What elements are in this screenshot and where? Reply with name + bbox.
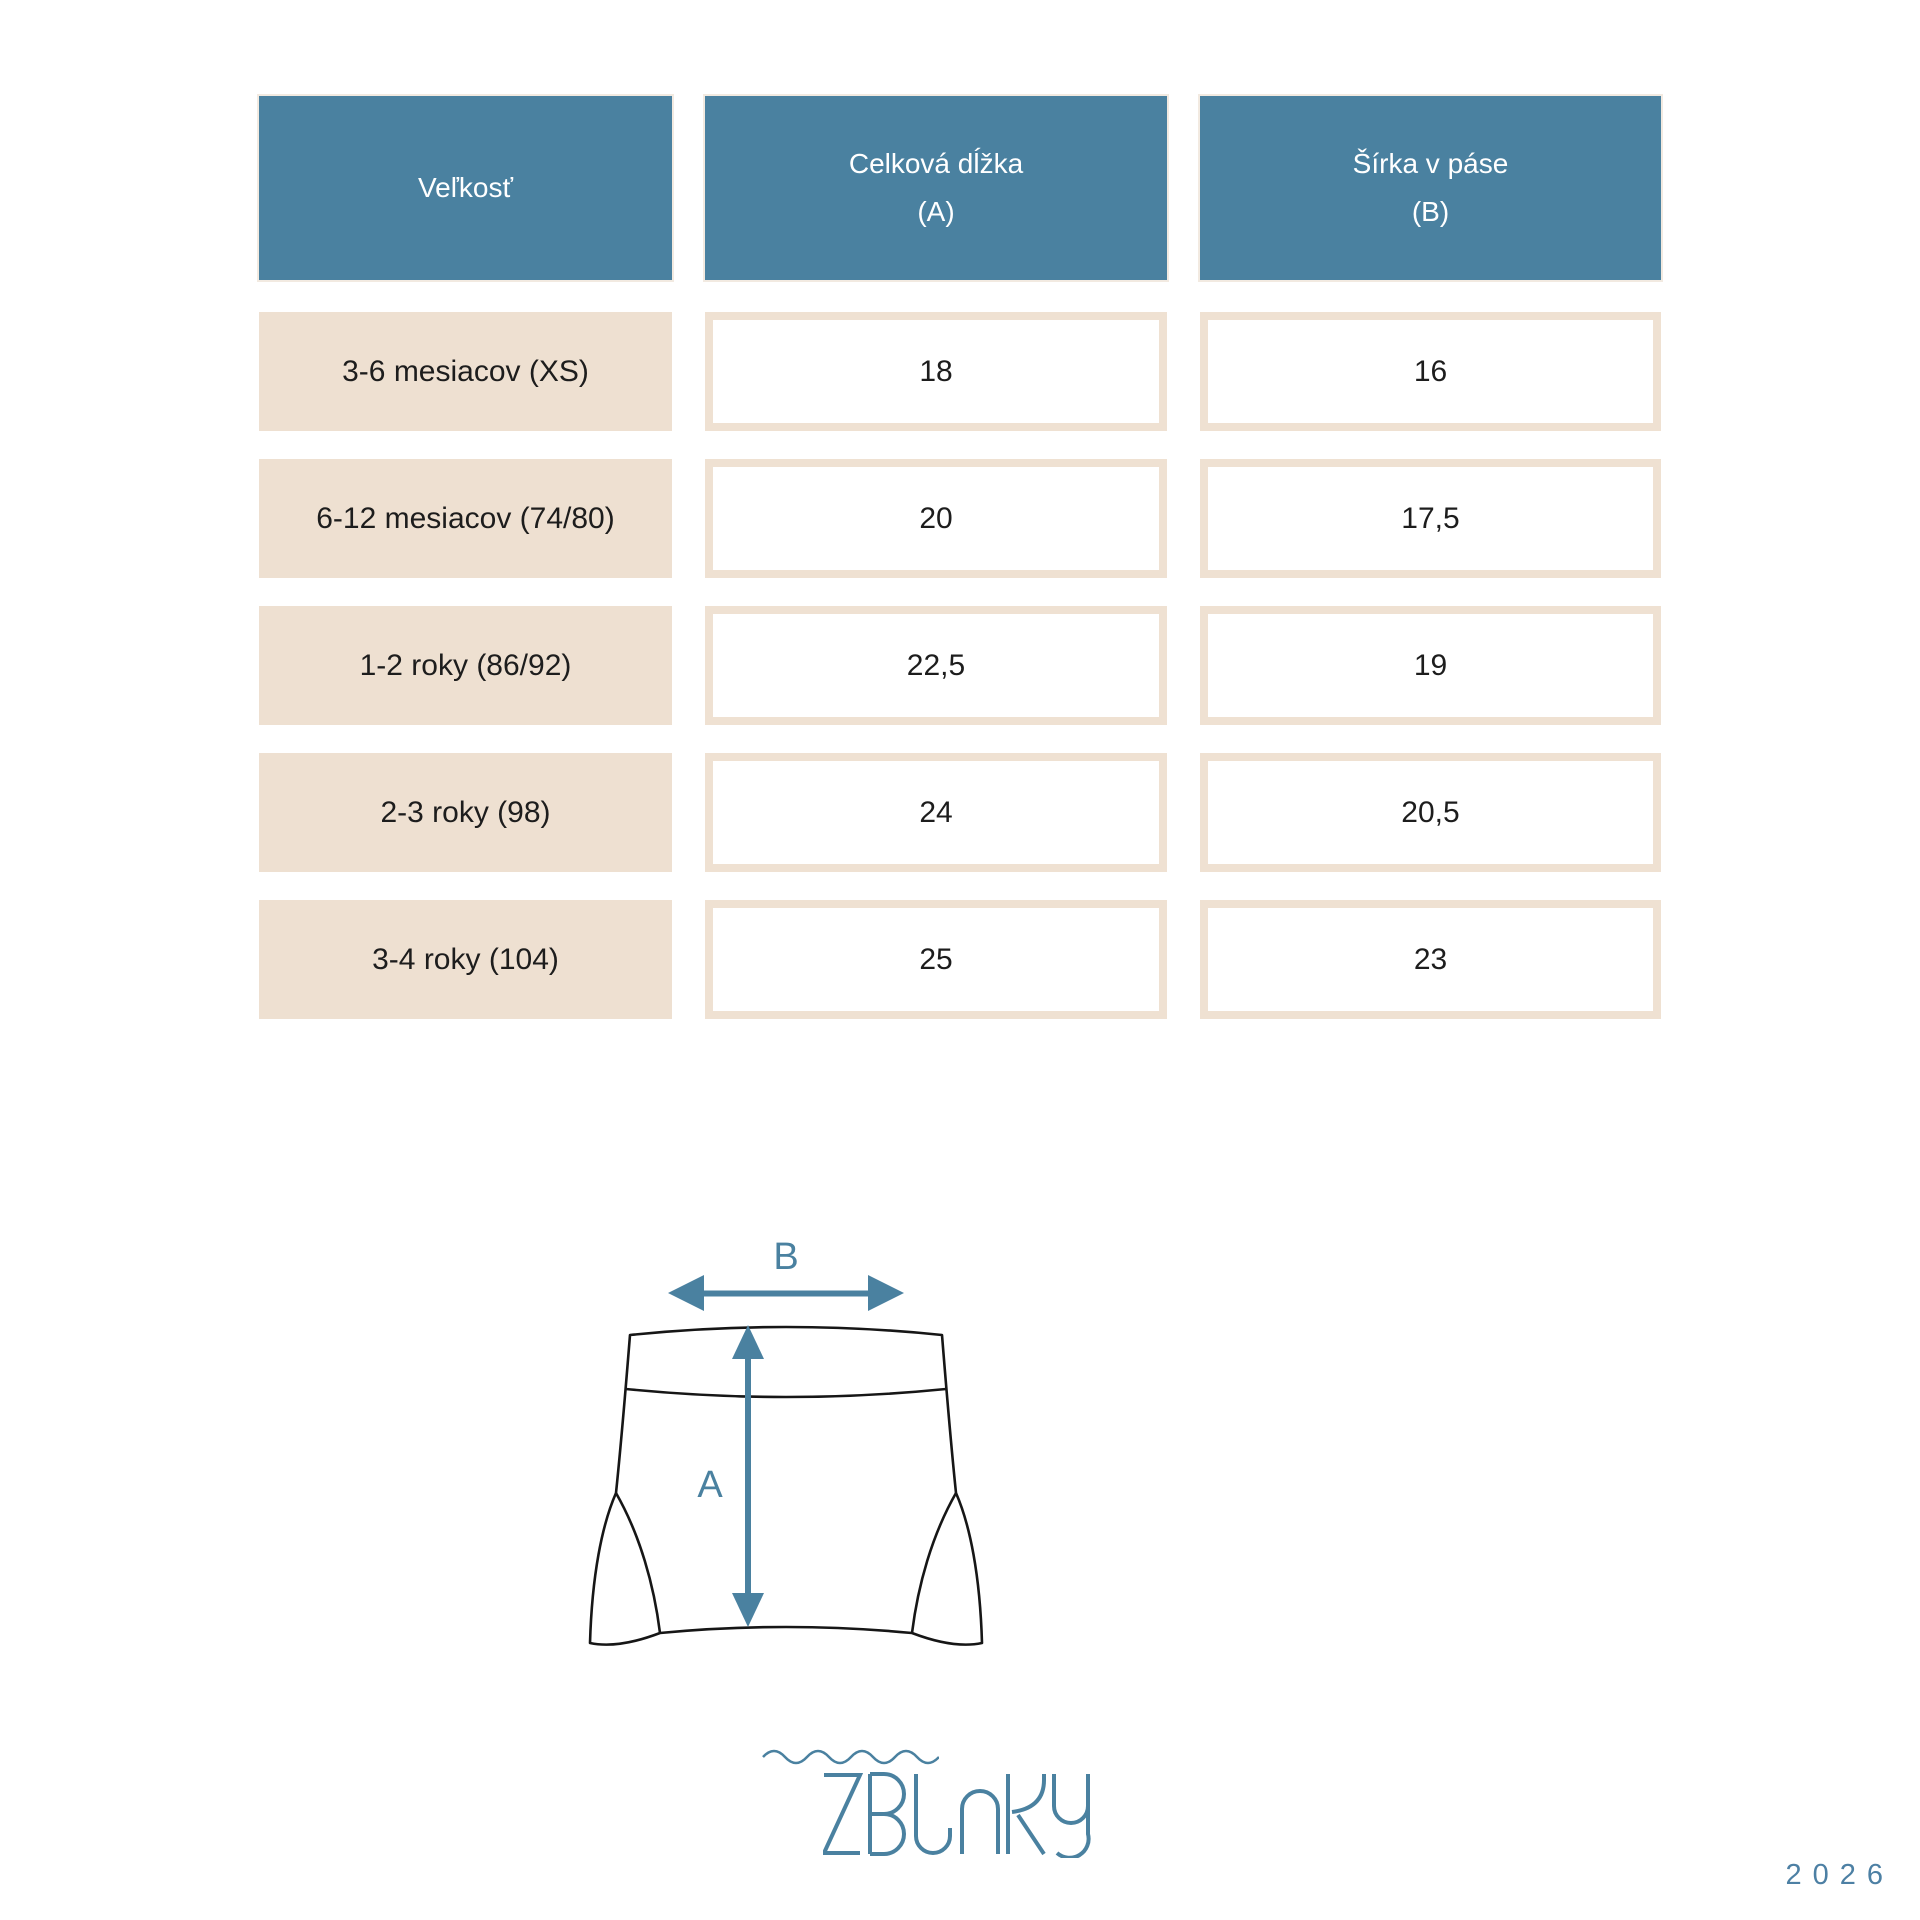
size-label-cell-2: 1-2 roky (86/92) bbox=[259, 606, 672, 725]
brand-letter-n bbox=[962, 1791, 998, 1854]
length-value-cell-3: 24 bbox=[705, 753, 1167, 872]
table-header-row: Veľkosť Celková dĺžka (A) Šírka v páse (… bbox=[259, 96, 1661, 280]
a-measure-label: A bbox=[697, 1464, 723, 1506]
brand-letter-k bbox=[1008, 1774, 1044, 1854]
length-value-cell-1: 20 bbox=[705, 459, 1167, 578]
brand-letter-y bbox=[1054, 1774, 1089, 1858]
size-label-cell-0: 3-6 mesiacov (XS) bbox=[259, 312, 672, 431]
b-arrow-icon bbox=[668, 1275, 904, 1311]
garment-outline bbox=[590, 1327, 982, 1645]
header-cell-waist-width: Šírka v páse (B) bbox=[1200, 96, 1661, 280]
size-label-cell-4: 3-4 roky (104) bbox=[259, 900, 672, 1019]
brand-wave-icon bbox=[761, 1744, 939, 1768]
measurement-diagram-svg: B A bbox=[550, 1235, 1020, 1705]
length-value-cell-4: 25 bbox=[705, 900, 1167, 1019]
width-value-cell-0: 16 bbox=[1200, 312, 1661, 431]
header-cell-size: Veľkosť bbox=[259, 96, 672, 280]
header-cell-total-length: Celková dĺžka (A) bbox=[705, 96, 1167, 280]
table-body: 3-6 mesiacov (XS) 18 16 6-12 mesiacov (7… bbox=[259, 312, 1661, 1019]
header-unit-waist-width: (B) bbox=[1412, 188, 1449, 236]
brand-logo bbox=[823, 1772, 1091, 1858]
size-label-cell-3: 2-3 roky (98) bbox=[259, 753, 672, 872]
left-leg-curve bbox=[616, 1493, 660, 1633]
brand-letter-b bbox=[870, 1774, 904, 1854]
header-title-size: Veľkosť bbox=[418, 164, 513, 212]
size-label-cell-1: 6-12 mesiacov (74/80) bbox=[259, 459, 672, 578]
length-value-cell-0: 18 bbox=[705, 312, 1167, 431]
width-value-cell-3: 20,5 bbox=[1200, 753, 1661, 872]
b-measure-label: B bbox=[773, 1236, 798, 1278]
width-value-cell-2: 19 bbox=[1200, 606, 1661, 725]
waistband-line bbox=[626, 1389, 946, 1397]
size-chart-page: Veľkosť Celková dĺžka (A) Šírka v páse (… bbox=[0, 0, 1920, 1920]
brand-letter-l bbox=[916, 1774, 950, 1853]
header-title-total-length: Celková dĺžka bbox=[849, 140, 1023, 188]
width-value-cell-1: 17,5 bbox=[1200, 459, 1661, 578]
measurement-diagram: B A bbox=[550, 1235, 1020, 1705]
size-table: Veľkosť Celková dĺžka (A) Šírka v páse (… bbox=[259, 96, 1661, 1019]
a-arrow-icon bbox=[732, 1325, 764, 1627]
length-value-cell-2: 22,5 bbox=[705, 606, 1167, 725]
right-leg-curve bbox=[912, 1493, 956, 1633]
header-title-waist-width: Šírka v páse bbox=[1353, 140, 1509, 188]
brand-letter-z bbox=[824, 1775, 860, 1853]
header-unit-total-length: (A) bbox=[917, 188, 954, 236]
year-label: 2026 bbox=[1785, 1859, 1894, 1892]
width-value-cell-4: 23 bbox=[1200, 900, 1661, 1019]
